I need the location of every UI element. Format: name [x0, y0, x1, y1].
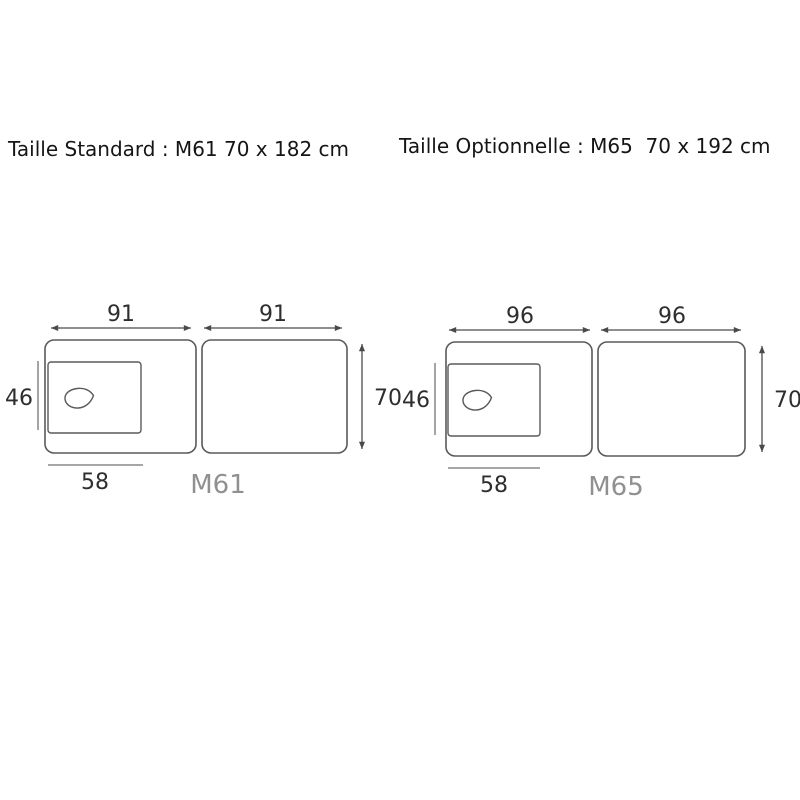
m61-body-section: [202, 340, 347, 453]
tables-dimension-drawing: 91 91 46 70 58 M61 96 96 46 70 58: [0, 0, 800, 800]
m65-model-label: M65: [588, 472, 644, 502]
m61-section1-dim-label: 91: [107, 302, 135, 327]
m65-width-dim-label: 70: [774, 388, 800, 413]
m65-headrest-height-label: 46: [402, 388, 430, 413]
m65-section2-dim-label: 96: [658, 304, 686, 329]
m65-head-section: [446, 342, 592, 456]
dimension-diagram-page: Taille Standard : M61 70 x 182 cm Taille…: [0, 0, 800, 800]
m65-section1-dim-label: 96: [506, 304, 534, 329]
m61-section2-dim-label: 91: [259, 302, 287, 327]
m65-body-section: [598, 342, 745, 456]
m61-model-label: M61: [190, 470, 246, 500]
m61-width-dim-label: 70: [374, 386, 402, 411]
m61-head-section: [45, 340, 196, 453]
m65-headrest-width-label: 58: [480, 473, 508, 498]
m61-headrest-height-label: 46: [5, 386, 33, 411]
m61-diagram: 91 91 46 70 58 M61: [5, 302, 402, 500]
m61-headrest-width-label: 58: [81, 470, 109, 495]
m65-diagram: 96 96 46 70 58 M65: [402, 304, 800, 502]
